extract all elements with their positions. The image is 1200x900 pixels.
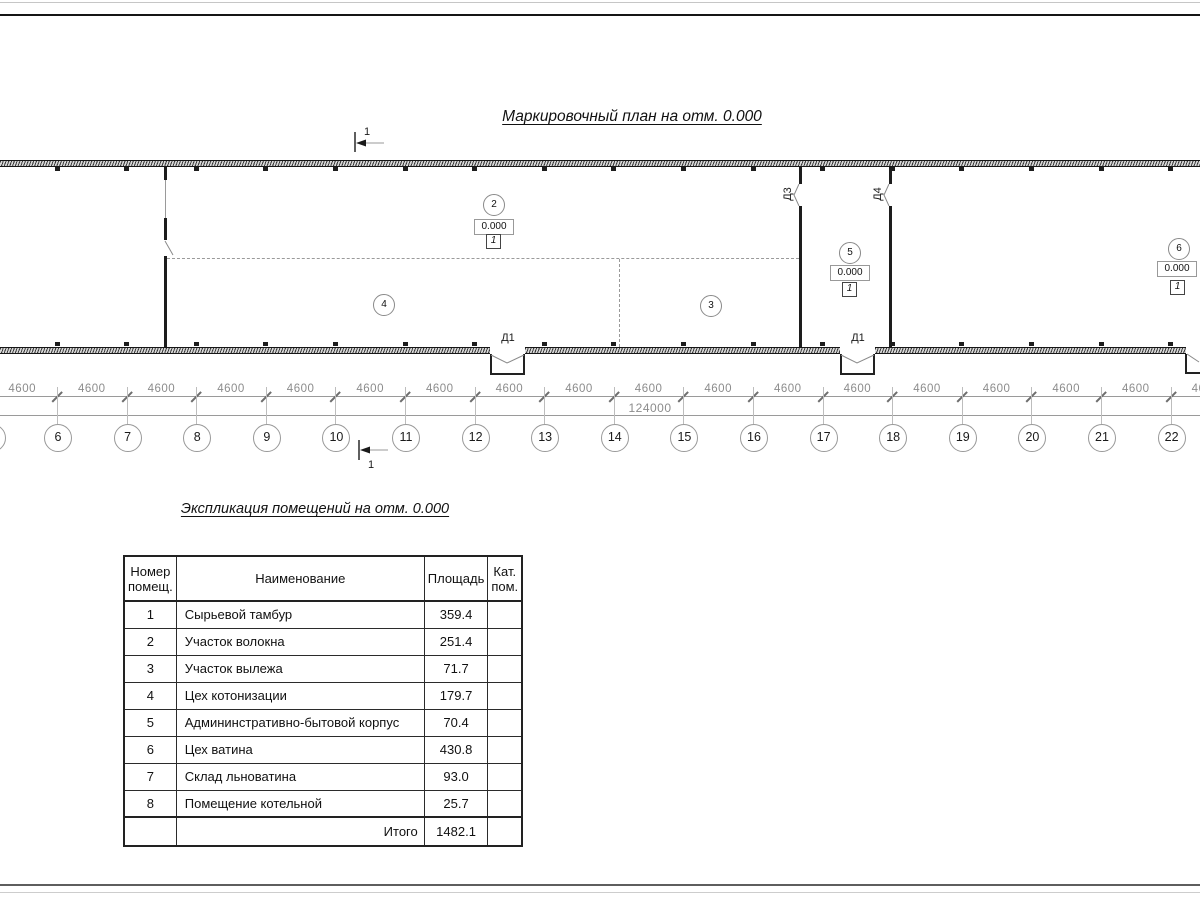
grid-bubble: 16 — [740, 424, 768, 452]
door-label-d3: Д3 — [782, 182, 794, 206]
table-row: 4Цех котонизации179.7 — [124, 682, 522, 709]
column-mark — [55, 342, 60, 346]
elevation-box: 0.000 — [474, 219, 514, 235]
table-total-row: Итого 1482.1 — [124, 817, 522, 846]
column-mark — [55, 167, 60, 171]
cell-name: Цех ватина — [176, 736, 424, 763]
table-row: 2Участок волокна251.4 — [124, 628, 522, 655]
dimension-line-bays — [0, 396, 1200, 397]
cell-area: 430.8 — [424, 736, 488, 763]
dimension-label: 4600 — [126, 383, 196, 395]
dimension-label: 4600 — [1101, 383, 1171, 395]
cell-name: Помещение котельной — [176, 790, 424, 817]
column-mark — [333, 167, 338, 171]
table-row: 3Участок вылежа71.7 — [124, 655, 522, 682]
cell-num: 6 — [124, 736, 176, 763]
total-label: Итого — [176, 817, 424, 846]
grid-bubble: 17 — [810, 424, 838, 452]
cell-area: 70.4 — [424, 709, 488, 736]
room-number-bubble: 6 — [1168, 238, 1190, 260]
cell-name: Цех котонизации — [176, 682, 424, 709]
bottom-wall-segment — [525, 347, 840, 354]
cell-num: 5 — [124, 709, 176, 736]
section-mark-bottom-label: 1 — [368, 459, 374, 471]
column-mark — [263, 167, 268, 171]
column-mark — [1168, 342, 1173, 346]
cell-cat — [488, 601, 522, 628]
total-empty-cell — [124, 817, 176, 846]
column-mark — [681, 167, 686, 171]
bottom-wall-segment — [875, 347, 1186, 354]
header-room-number: Номер помещ. — [124, 556, 176, 601]
column-mark — [124, 167, 129, 171]
dimension-label: 4600 — [266, 383, 336, 395]
cell-area: 251.4 — [424, 628, 488, 655]
cell-area: 71.7 — [424, 655, 488, 682]
column-mark — [472, 167, 477, 171]
cell-num: 3 — [124, 655, 176, 682]
dimension-label: 4600 — [614, 383, 684, 395]
total-empty-cell — [488, 817, 522, 846]
cell-cat — [488, 790, 522, 817]
room-number-bubble: 5 — [839, 242, 861, 264]
door-label-d1: Д1 — [493, 332, 523, 344]
cell-name: Склад льноватина — [176, 763, 424, 790]
interior-wall-left — [164, 256, 167, 347]
column-mark — [194, 167, 199, 171]
interior-wall-left — [164, 218, 167, 240]
column-mark — [959, 167, 964, 171]
room-number-bubble: 3 — [700, 295, 722, 317]
room-number-bubble: 4 — [373, 294, 395, 316]
right-door-sill — [1185, 372, 1200, 374]
table-row: 1Сырьевой тамбур359.4 — [124, 601, 522, 628]
section-mark-top-label: 1 — [364, 126, 370, 138]
dimension-label: 4600 — [962, 383, 1032, 395]
room-schedule-title: Экспликация помещений на отм. 0.000 — [165, 501, 465, 517]
column-mark — [611, 342, 616, 346]
table-row: 6Цех ватина430.8 — [124, 736, 522, 763]
grid-bubble: 8 — [183, 424, 211, 452]
frame-edge-top — [0, 14, 1200, 16]
column-mark — [751, 342, 756, 346]
column-mark — [1099, 342, 1104, 346]
door-label-d4: Д4 — [872, 182, 884, 206]
dimension-label: 4600 — [335, 383, 405, 395]
grid-bubble: 14 — [601, 424, 629, 452]
header-area: Площадь — [424, 556, 488, 601]
grid-bubble: 15 — [670, 424, 698, 452]
grid-bubble: 11 — [392, 424, 420, 452]
interior-wall-d3 — [799, 206, 802, 347]
column-mark — [820, 342, 825, 346]
column-mark — [542, 167, 547, 171]
category-box: 1 — [1170, 280, 1185, 295]
column-mark — [333, 342, 338, 346]
category-box: 1 — [842, 282, 857, 297]
grid-bubble: 12 — [462, 424, 490, 452]
plan-title: Маркировочный план на отм. 0.000 — [412, 108, 852, 126]
door-d1-leaf — [840, 354, 875, 366]
column-mark — [542, 342, 547, 346]
grid-bubble: 22 — [1158, 424, 1186, 452]
door-label-d1: Д1 — [843, 332, 873, 344]
column-mark — [1029, 342, 1034, 346]
column-mark — [751, 167, 756, 171]
column-mark — [890, 342, 895, 346]
column-mark — [403, 342, 408, 346]
right-door-leaf — [1187, 353, 1200, 364]
grid-bubble: 21 — [1088, 424, 1116, 452]
dimension-label: 4600 — [683, 383, 753, 395]
cell-name: Участок вылежа — [176, 655, 424, 682]
column-mark — [1099, 167, 1104, 171]
cell-area: 25.7 — [424, 790, 488, 817]
interior-wall-d3 — [799, 167, 802, 184]
grid-bubble: 6 — [44, 424, 72, 452]
section-mark-bottom: 1 — [344, 438, 396, 472]
column-mark — [403, 167, 408, 171]
room-number-bubble: 2 — [483, 194, 505, 216]
dimension-label: 4600 — [544, 383, 614, 395]
interior-wall-left — [164, 167, 167, 180]
grid-bubble: 7 — [114, 424, 142, 452]
dimension-label: 4600 — [57, 383, 127, 395]
dimension-label: 4600 — [405, 383, 475, 395]
door-leaf — [164, 240, 175, 257]
header-name: Наименование — [176, 556, 424, 601]
dimension-label: 4600 — [1031, 383, 1101, 395]
column-mark — [124, 342, 129, 346]
elevation-box: 0.000 — [1157, 261, 1197, 277]
cell-cat — [488, 709, 522, 736]
dimension-label: 4600 — [0, 383, 57, 395]
column-mark — [1029, 167, 1034, 171]
cell-name: Сырьевой тамбур — [176, 601, 424, 628]
column-mark — [1168, 167, 1173, 171]
column-mark — [263, 342, 268, 346]
dimension-label: 4600 — [753, 383, 823, 395]
header-category: Кат. пом. — [488, 556, 522, 601]
elevation-box: 0.000 — [830, 265, 870, 281]
dashed-partition-horizontal — [167, 258, 799, 259]
cell-cat — [488, 736, 522, 763]
section-mark-top: 1 — [338, 122, 390, 154]
cell-cat — [488, 655, 522, 682]
interior-wall-d4 — [889, 206, 892, 347]
door-leaf-line — [165, 180, 166, 218]
frame-edge-top-light — [0, 2, 1200, 3]
grid-bubble: 20 — [1018, 424, 1046, 452]
column-mark — [959, 342, 964, 346]
cell-cat — [488, 628, 522, 655]
dimension-label: 4600 — [822, 383, 892, 395]
dimension-label: 4600 — [474, 383, 544, 395]
dimension-label: 4600 — [196, 383, 266, 395]
dimension-label: 4600 — [892, 383, 962, 395]
cell-num: 1 — [124, 601, 176, 628]
table-row: 8Помещение котельной25.7 — [124, 790, 522, 817]
grid-bubble: 9 — [253, 424, 281, 452]
grid-bubble: 19 — [949, 424, 977, 452]
cell-cat — [488, 682, 522, 709]
frame-edge-bottom — [0, 884, 1200, 886]
cell-num: 7 — [124, 763, 176, 790]
grid-bubble-partial — [0, 424, 6, 452]
table-header-row: Номер помещ. Наименование Площадь Кат. п… — [124, 556, 522, 601]
cell-num: 4 — [124, 682, 176, 709]
dimension-line-total — [0, 415, 1200, 416]
column-mark — [820, 167, 825, 171]
column-mark — [472, 342, 477, 346]
cell-name: Админинстративно-бытовой корпус — [176, 709, 424, 736]
cell-area: 179.7 — [424, 682, 488, 709]
grid-bubble: 13 — [531, 424, 559, 452]
cell-area: 359.4 — [424, 601, 488, 628]
column-mark — [194, 342, 199, 346]
bottom-wall-segment — [0, 347, 490, 354]
drawing-sheet: Маркировочный план на отм. 0.000 1 Д3 Д4 — [0, 0, 1200, 900]
grid-bubble: 18 — [879, 424, 907, 452]
category-box: 1 — [486, 234, 501, 249]
column-mark — [611, 167, 616, 171]
column-mark — [890, 167, 895, 171]
table-row: 7Склад льноватина93.0 — [124, 763, 522, 790]
door-d1-leaf — [490, 354, 525, 366]
table-row: 5Админинстративно-бытовой корпус70.4 — [124, 709, 522, 736]
cell-cat — [488, 763, 522, 790]
cell-num: 2 — [124, 628, 176, 655]
cell-area: 93.0 — [424, 763, 488, 790]
frame-edge-bottom-light — [0, 892, 1200, 893]
total-value: 1482.1 — [424, 817, 488, 846]
cell-num: 8 — [124, 790, 176, 817]
dimension-label: 4600 — [1170, 383, 1200, 395]
top-exterior-wall — [0, 160, 1200, 167]
cell-name: Участок волокна — [176, 628, 424, 655]
column-mark — [681, 342, 686, 346]
dashed-partition-vertical — [619, 259, 620, 347]
total-dimension-label: 124000 — [600, 401, 700, 415]
room-schedule-table: Номер помещ. Наименование Площадь Кат. п… — [123, 555, 523, 847]
